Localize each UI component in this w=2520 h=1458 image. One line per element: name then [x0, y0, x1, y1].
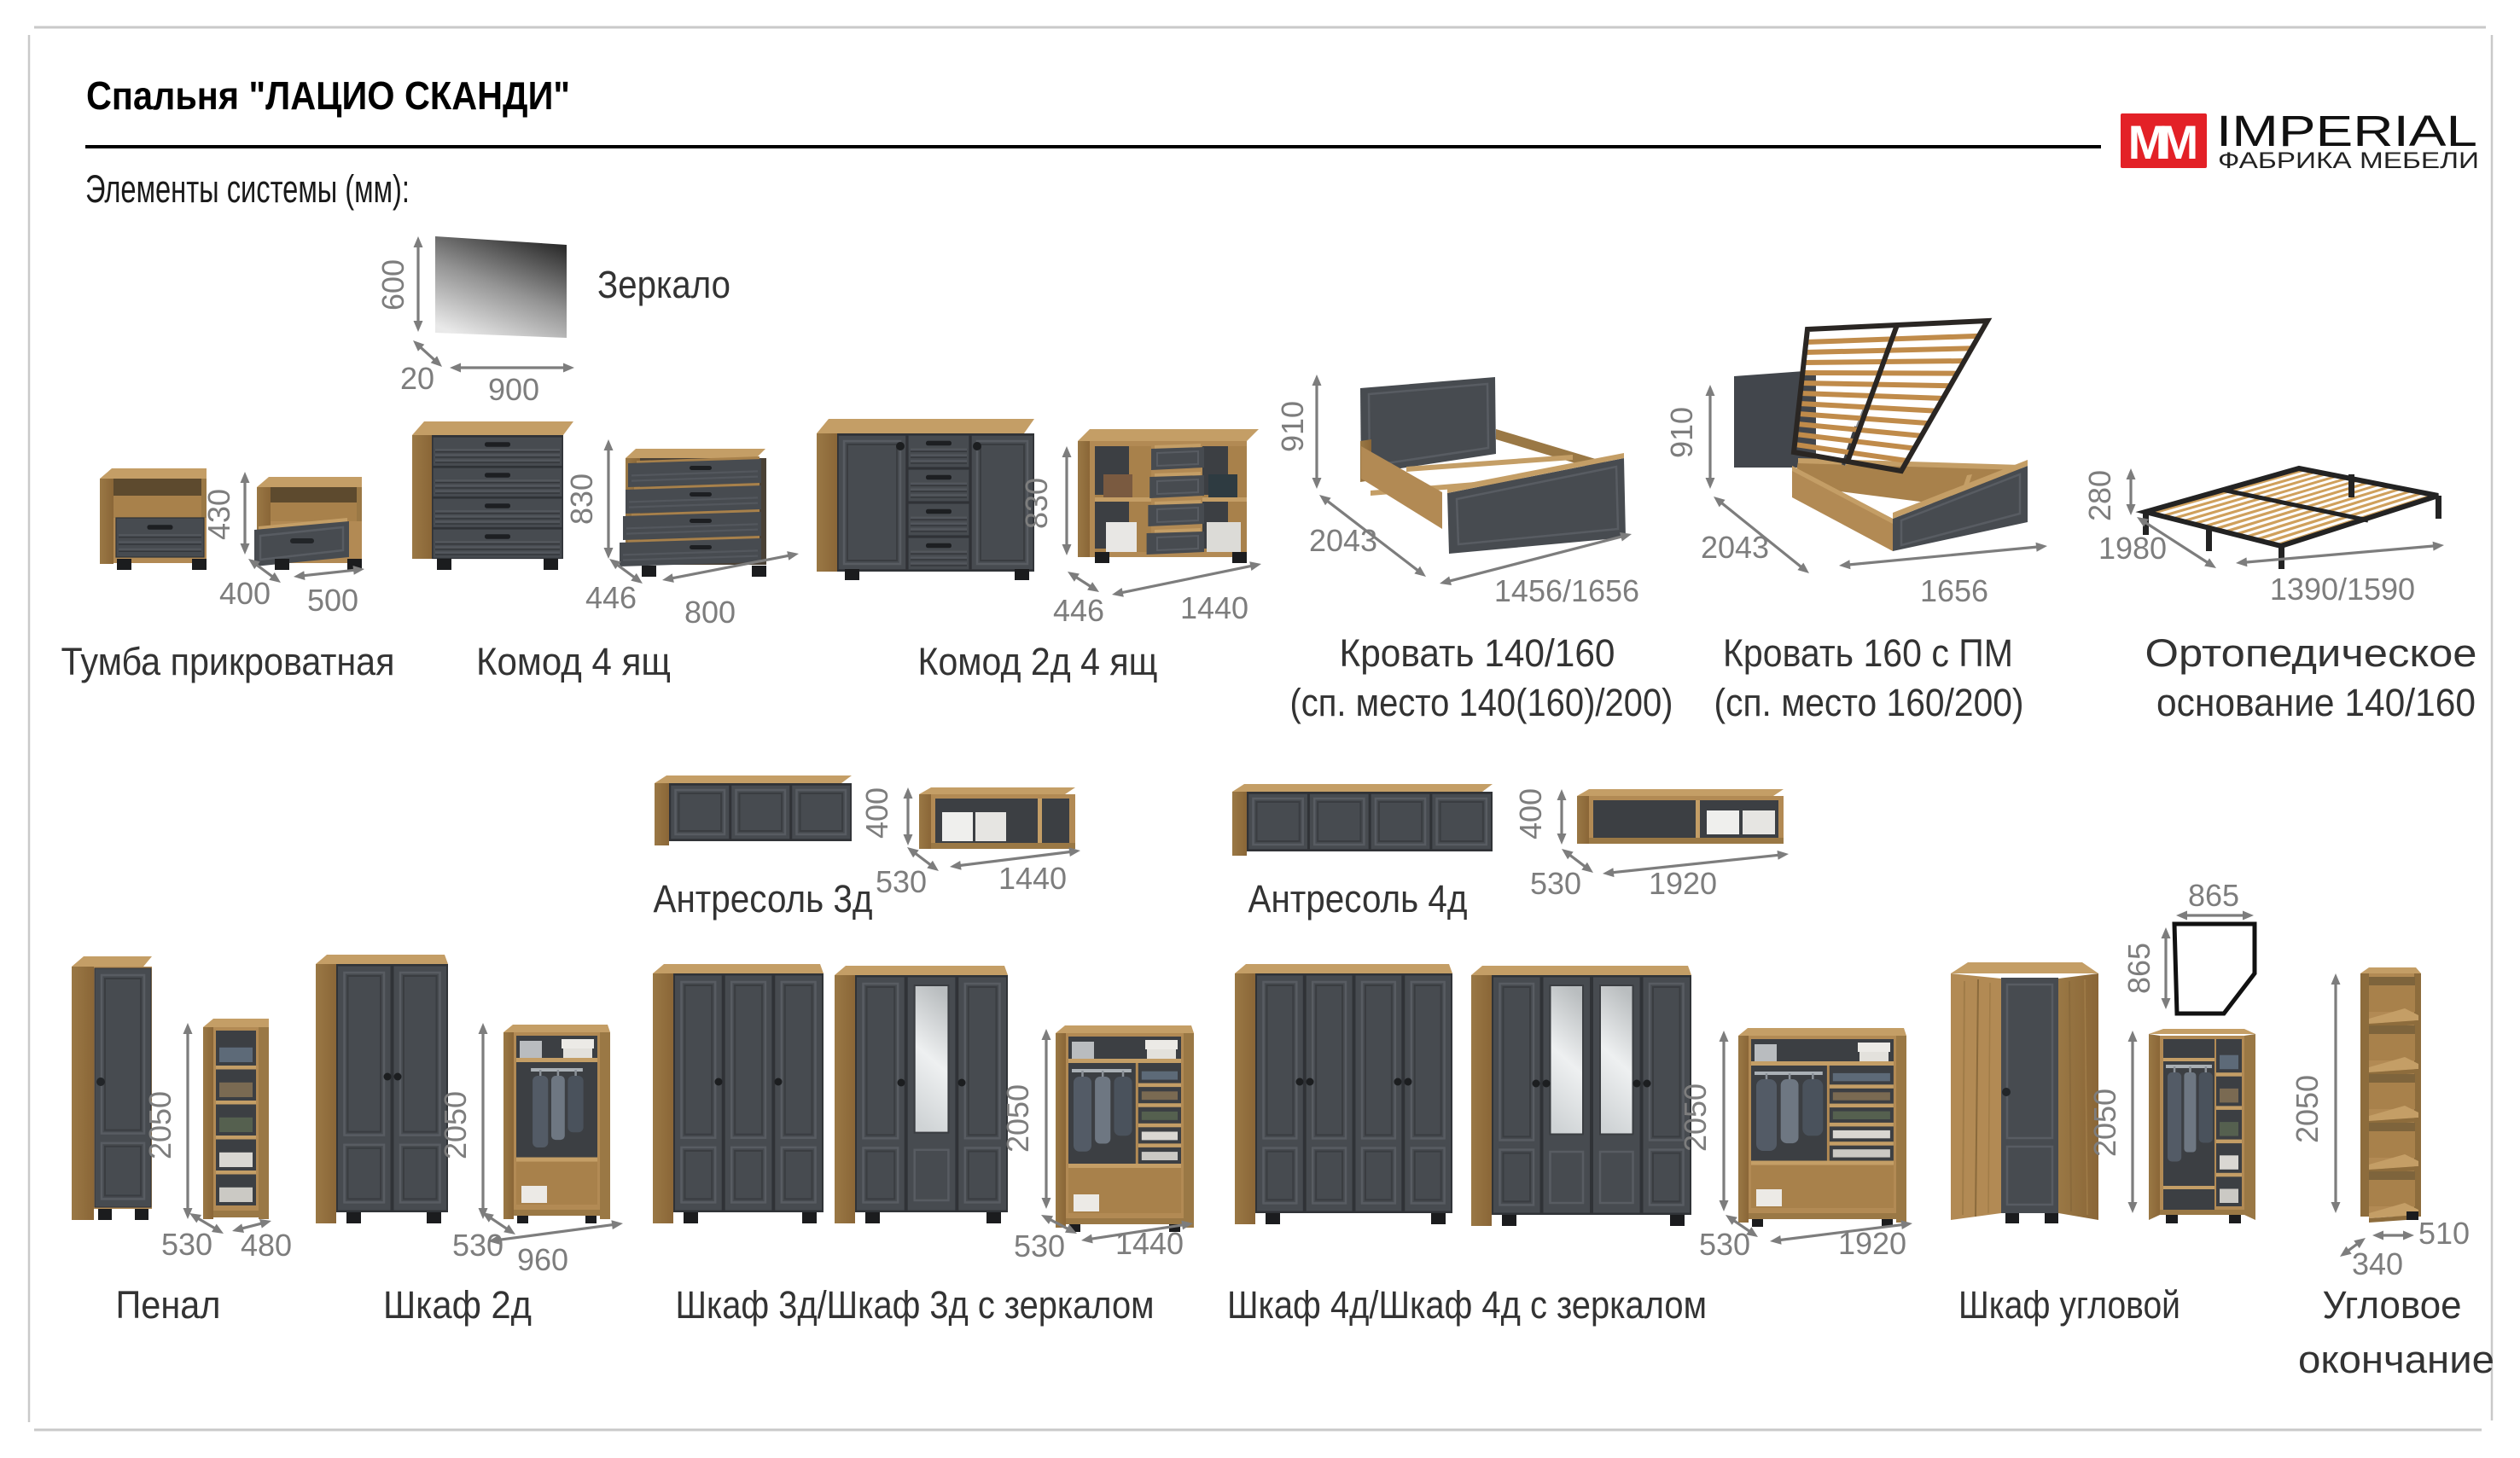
svg-text:530: 530	[452, 1228, 503, 1263]
svg-text:865: 865	[2121, 943, 2156, 994]
svg-text:2050: 2050	[2087, 1089, 2122, 1157]
svg-text:530: 530	[161, 1227, 212, 1262]
svg-text:1980: 1980	[2098, 531, 2167, 566]
svg-text:960: 960	[517, 1242, 568, 1277]
svg-text:(сп. место 160/200): (сп. место 160/200)	[1714, 681, 2024, 724]
svg-text:446: 446	[585, 580, 637, 615]
svg-text:480: 480	[241, 1228, 292, 1263]
svg-text:20: 20	[400, 361, 434, 396]
svg-text:530: 530	[1699, 1227, 1750, 1262]
svg-text:2050: 2050	[1000, 1084, 1035, 1153]
svg-text:Кровать 160 с ПМ: Кровать 160 с ПМ	[1723, 631, 2013, 675]
svg-text:1440: 1440	[1115, 1226, 1184, 1261]
svg-text:Шкаф 2д: Шкаф 2д	[383, 1283, 532, 1327]
svg-text:Комод 4 ящ: Комод 4 ящ	[476, 640, 671, 683]
svg-text:Тумба прикроватная: Тумба прикроватная	[61, 640, 395, 683]
svg-text:910: 910	[1664, 407, 1699, 458]
svg-text:910: 910	[1275, 401, 1310, 452]
svg-text:830: 830	[1019, 478, 1054, 529]
svg-text:2043: 2043	[1701, 530, 1769, 565]
svg-text:Кровать 140/160: Кровать 140/160	[1340, 631, 1615, 675]
svg-text:2050: 2050	[2290, 1075, 2325, 1143]
svg-text:1390/1590: 1390/1590	[2270, 572, 2415, 607]
svg-text:446: 446	[1053, 593, 1104, 628]
svg-text:2043: 2043	[1309, 523, 1377, 558]
svg-text:2050: 2050	[143, 1091, 178, 1159]
svg-text:400: 400	[1513, 788, 1548, 839]
svg-text:1456/1656: 1456/1656	[1494, 573, 1639, 608]
svg-text:865: 865	[2188, 878, 2239, 913]
svg-text:окончание: окончание	[2298, 1338, 2494, 1381]
svg-text:2050: 2050	[1678, 1083, 1713, 1152]
svg-text:M: M	[2159, 115, 2199, 169]
svg-text:430: 430	[201, 489, 236, 540]
svg-text:Комод 2д 4 ящ: Комод 2д 4 ящ	[918, 640, 1158, 683]
svg-text:900: 900	[488, 372, 539, 407]
svg-text:Спальня "ЛАЦИО СКАНДИ": Спальня "ЛАЦИО СКАНДИ"	[86, 73, 570, 118]
svg-text:400: 400	[859, 787, 894, 839]
svg-text:Угловое: Угловое	[2323, 1283, 2462, 1327]
svg-text:Шкаф 4д/Шкаф 4д с зеркалом: Шкаф 4д/Шкаф 4д с зеркалом	[1227, 1283, 1707, 1327]
svg-text:основание 140/160: основание 140/160	[2156, 681, 2476, 724]
svg-text:1920: 1920	[1649, 866, 1717, 901]
svg-text:Ортопедическое: Ортопедическое	[2145, 631, 2477, 675]
svg-text:Пенал: Пенал	[116, 1283, 221, 1327]
svg-text:2050: 2050	[438, 1091, 473, 1159]
svg-text:Шкаф угловой: Шкаф угловой	[1958, 1283, 2180, 1327]
svg-text:(сп. место 140(160)/200): (сп. место 140(160)/200)	[1290, 681, 1673, 724]
svg-text:530: 530	[1014, 1229, 1065, 1263]
svg-text:Антресоль 3д: Антресоль 3д	[654, 877, 873, 921]
svg-text:Зеркало: Зеркало	[597, 263, 730, 306]
svg-text:510: 510	[2418, 1216, 2470, 1251]
svg-text:400: 400	[219, 576, 271, 611]
svg-text:830: 830	[564, 473, 599, 525]
svg-text:530: 530	[1530, 866, 1581, 901]
svg-text:340: 340	[2352, 1246, 2403, 1281]
svg-text:ФАБРИКА МЕБЕЛИ: ФАБРИКА МЕБЕЛИ	[2218, 148, 2479, 173]
svg-text:1440: 1440	[1180, 590, 1248, 625]
svg-text:500: 500	[307, 583, 358, 618]
svg-text:1656: 1656	[1920, 573, 1988, 608]
svg-text:Шкаф 3д/Шкаф 3д с зеркалом: Шкаф 3д/Шкаф 3д с зеркалом	[676, 1283, 1155, 1327]
svg-text:1920: 1920	[1838, 1226, 1906, 1261]
svg-text:1440: 1440	[998, 861, 1067, 896]
svg-text:530: 530	[876, 864, 927, 899]
svg-text:800: 800	[684, 595, 736, 630]
svg-text:280: 280	[2082, 470, 2117, 521]
svg-text:Антресоль 4д: Антресоль 4д	[1248, 877, 1468, 921]
svg-text:600: 600	[375, 259, 410, 311]
svg-text:Элементы системы (мм):: Элементы системы (мм):	[85, 167, 410, 211]
